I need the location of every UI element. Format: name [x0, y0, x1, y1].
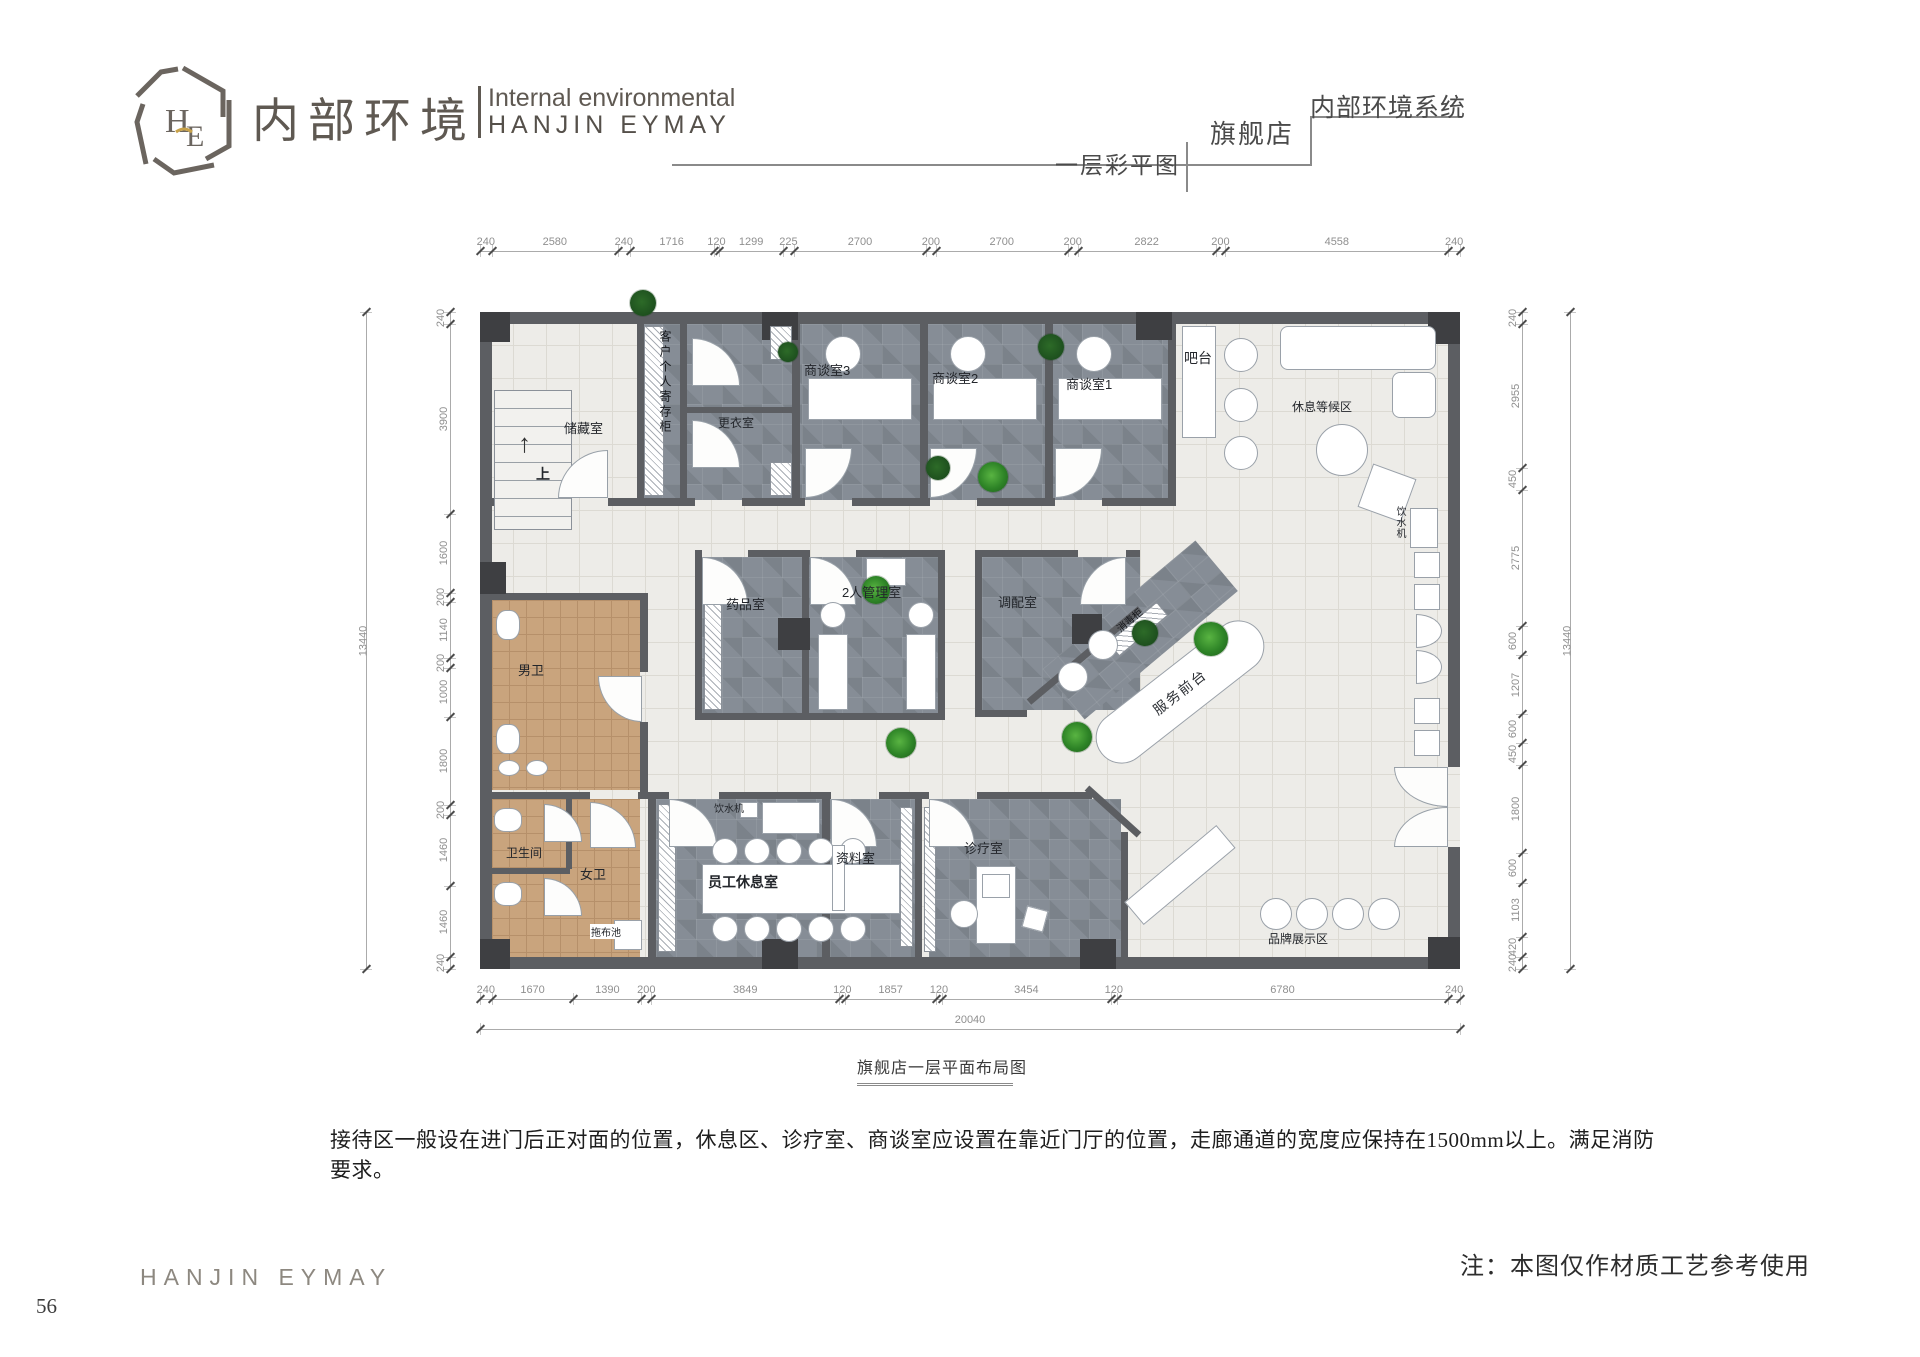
dimension-value: 200 — [435, 588, 447, 606]
pillar — [480, 312, 510, 342]
dimension-value: 240 — [435, 309, 447, 327]
wall — [638, 792, 669, 799]
wall — [915, 799, 922, 957]
dimension-total-height-left: 13440 — [344, 312, 370, 969]
dimension-value: 2580 — [543, 236, 567, 248]
display-niche — [1414, 552, 1440, 578]
dimension-value: 200 — [435, 800, 447, 818]
dimension-value: 1000 — [438, 680, 450, 704]
reference-note: 注：本图仅作材质工艺参考使用 — [1460, 1246, 1810, 1281]
dimension-value: 2822 — [1134, 236, 1158, 248]
dimension-value: 240 — [477, 984, 495, 996]
chair — [712, 916, 738, 942]
dimension-mark — [1522, 312, 1523, 969]
sofa-corner — [1392, 372, 1436, 418]
dimension-value: 2700 — [848, 236, 872, 248]
dimension-value: 1140 — [438, 618, 450, 642]
document-page: H E 内部环境 Internal environmental HANJIN E… — [0, 0, 1920, 1357]
pillar — [480, 562, 506, 594]
wall — [492, 868, 570, 874]
toilet — [494, 882, 522, 906]
brand-en-line2: HANJIN EYMAY — [488, 111, 731, 140]
dimension-value: 225 — [779, 236, 797, 248]
room-label-meeting2: 商谈室2 — [932, 368, 978, 387]
pillar — [1136, 312, 1172, 340]
room-label-meeting1: 商谈室1 — [1066, 374, 1112, 393]
dimension-value: 450 — [1507, 745, 1519, 763]
brand-en-line1: Internal environmental — [488, 84, 735, 113]
dimension-col-right: 2402955450277560012076004501800600110342… — [1500, 312, 1526, 969]
dimension-value: 200 — [922, 236, 940, 248]
chair — [808, 916, 834, 942]
dimension-value: 1800 — [438, 749, 450, 773]
brand-cn: 内部环境 — [252, 82, 476, 151]
wall — [975, 550, 1078, 557]
wall — [480, 792, 590, 799]
room-label-management: 2人管理室 — [842, 582, 901, 601]
sink — [526, 760, 548, 776]
wall — [608, 498, 695, 506]
plant-icon — [1062, 722, 1092, 752]
dimension-value: 120 — [930, 984, 948, 996]
plant-icon — [1132, 620, 1158, 646]
dimension-value: 600 — [1507, 859, 1519, 877]
dimension-value: 600 — [1507, 631, 1519, 649]
display-stool — [1296, 898, 1328, 930]
dimension-value: 450 — [1507, 470, 1519, 488]
pillar — [480, 939, 510, 969]
chair — [950, 900, 978, 928]
wall — [856, 550, 938, 557]
display-stool — [1332, 898, 1364, 930]
wall-left — [480, 312, 492, 969]
wall — [640, 600, 648, 672]
stool — [1088, 630, 1118, 660]
dimension-value: 1857 — [878, 984, 902, 996]
chair — [744, 838, 770, 864]
dimension-col-left: 2403900160020011402001000180020014601460… — [428, 312, 454, 969]
monitor — [982, 874, 1010, 898]
dimension-value: 2955 — [1510, 384, 1522, 408]
wall — [977, 498, 1055, 506]
room-label-storage: 储藏室 — [564, 418, 603, 437]
wall — [687, 407, 792, 413]
wall — [695, 713, 945, 720]
header-drawing-title: 一层彩平图 — [1044, 146, 1180, 180]
bar-stool — [1224, 388, 1258, 422]
urinal — [496, 724, 520, 754]
chair — [776, 838, 802, 864]
room-label-changing: 更衣室 — [718, 414, 754, 431]
header-system-title: 内部环境系统 — [1310, 88, 1466, 124]
wall — [1126, 550, 1140, 557]
wall — [695, 550, 702, 557]
svg-text:E: E — [186, 120, 204, 153]
header-rule-vertical — [1186, 142, 1188, 192]
room-label-mens: 男卫 — [518, 660, 544, 679]
wall — [648, 799, 656, 957]
equipment-cabinet — [770, 462, 792, 496]
wall — [492, 593, 648, 600]
room-label-meeting3: 商谈室3 — [804, 360, 850, 379]
dimension-value: 3900 — [438, 407, 450, 431]
wall — [742, 498, 805, 506]
wall — [977, 792, 1092, 799]
plant-icon — [926, 456, 950, 480]
dimension-value: 1460 — [438, 838, 450, 862]
dimension-value: 1207 — [1510, 672, 1522, 696]
display-niche — [1414, 584, 1440, 610]
wall — [748, 550, 810, 557]
dimension-value: 240 — [1507, 954, 1519, 972]
wall — [975, 710, 1027, 717]
plant-icon — [1194, 622, 1228, 656]
dimension-value: 2775 — [1510, 546, 1522, 570]
round-table — [1316, 424, 1368, 476]
dimension-value: 600 — [1507, 720, 1519, 738]
dimension-value: 3454 — [1014, 984, 1038, 996]
header-divider — [478, 86, 481, 138]
toilet — [494, 808, 522, 832]
wall-top — [480, 312, 1460, 324]
wall — [975, 550, 982, 717]
plant-icon — [1038, 334, 1064, 360]
bar-stool — [1224, 436, 1258, 470]
wall — [719, 792, 831, 799]
dimension-value: 1800 — [1510, 797, 1522, 821]
room-label-toilet: 卫生间 — [506, 844, 542, 861]
water-dispenser — [1410, 508, 1438, 548]
wall — [1102, 498, 1176, 506]
dimension-value: 4558 — [1325, 236, 1349, 248]
pillar — [762, 939, 798, 969]
dimension-value: 1670 — [520, 984, 544, 996]
dimension-value: 200 — [1211, 236, 1229, 248]
wall-right-upper — [1448, 312, 1460, 767]
room-label-staff: 员工休息室 — [708, 872, 778, 892]
stool — [908, 602, 934, 628]
wall-bottom — [480, 957, 1460, 969]
footer-brand: HANJIN EYMAY — [140, 1264, 392, 1291]
display-niche — [1414, 698, 1440, 724]
wall — [879, 792, 929, 799]
chair — [776, 916, 802, 942]
archive-shelf — [900, 807, 913, 947]
desk — [808, 378, 912, 420]
dimension-value: 240 — [1445, 984, 1463, 996]
sofa — [1280, 326, 1436, 370]
plant-icon — [778, 342, 798, 362]
sink — [498, 760, 520, 776]
wall — [637, 324, 644, 498]
room-label-archive: 资料室 — [836, 848, 875, 867]
header-step-low — [1186, 164, 1312, 166]
room-label-locker: 客户个人寄存柜 — [657, 330, 674, 490]
stool — [1058, 662, 1088, 692]
wall — [852, 498, 930, 506]
dimension-total-width: 20040 — [480, 1006, 1460, 1032]
body-paragraph: 接待区一般设在进门后正对面的位置，休息区、诊疗室、商谈室应设置在靠近门厅的位置，… — [330, 1124, 1660, 1184]
header-store-title: 旗舰店 — [1210, 114, 1294, 151]
room-label-staff-water: 饮水机 — [714, 800, 744, 815]
plant-icon — [630, 290, 656, 316]
pillar — [778, 618, 810, 650]
dimension-value: 20040 — [955, 1014, 986, 1026]
dimension-value: 120 — [833, 984, 851, 996]
dimension-value: 120 — [707, 236, 725, 248]
desk — [906, 634, 936, 710]
room-label-dispensing: 调配室 — [998, 592, 1037, 611]
dimension-row-top: 2402580240171612012992252700200270020028… — [480, 228, 1460, 254]
dimension-value: 1103 — [1510, 898, 1522, 922]
dimension-value: 200 — [1064, 236, 1082, 248]
dimension-value: 240 — [615, 236, 633, 248]
room-label-mop: 拖布池 — [590, 924, 622, 939]
dimension-total-height-right: 13440 — [1548, 312, 1574, 969]
stairs-up-arrow-icon: ↑ — [518, 428, 531, 459]
pillar — [1428, 937, 1460, 969]
room-label-display: 品牌展示区 — [1268, 930, 1328, 947]
dimension-value: 2700 — [990, 236, 1014, 248]
dimension-row-bottom: 2401670139020038491201857120345412067802… — [480, 976, 1460, 1002]
chair — [808, 838, 834, 864]
chair — [744, 916, 770, 942]
room-label-water-right: 饮水机 — [1392, 506, 1407, 539]
wall — [1121, 832, 1128, 957]
room-label-treatment: 诊疗室 — [964, 838, 1003, 857]
desk — [818, 634, 848, 710]
chair — [950, 336, 986, 372]
floor-plan: ↑ 上 — [480, 312, 1460, 969]
wall — [680, 324, 687, 498]
dimension-value: 1716 — [659, 236, 683, 248]
bar-counter — [1182, 326, 1216, 438]
dimension-value: 240 — [477, 236, 495, 248]
dimension-value: 120 — [1105, 984, 1123, 996]
plant-icon — [978, 462, 1008, 492]
chair — [840, 916, 866, 942]
dimension-value: 240 — [435, 954, 447, 972]
bar-stool — [1224, 338, 1258, 372]
display-niche — [1414, 730, 1440, 756]
dimension-value: 240 — [1507, 309, 1519, 327]
room-label-medicine: 药品室 — [726, 594, 765, 613]
room-label-waiting: 休息等候区 — [1292, 398, 1352, 415]
wall — [938, 550, 945, 720]
wall — [1168, 324, 1176, 498]
pillar — [1080, 939, 1116, 969]
wall — [640, 722, 648, 792]
dimension-value: 1299 — [739, 236, 763, 248]
urinal — [496, 610, 520, 640]
stool — [820, 602, 846, 628]
dimension-value: 1390 — [595, 984, 619, 996]
display-stool — [1368, 898, 1400, 930]
cabinet — [762, 802, 820, 834]
staircase — [494, 390, 572, 530]
chair — [712, 838, 738, 864]
room-label-up: 上 — [536, 464, 550, 484]
page-number: 56 — [36, 1294, 57, 1319]
room-label-bar: 吧台 — [1184, 348, 1212, 368]
display-stool — [1260, 898, 1292, 930]
dimension-value: 1460 — [438, 909, 450, 933]
dimension-value: 13440 — [1561, 625, 1573, 656]
dimension-mark — [480, 999, 1460, 1000]
dimension-value: 200 — [435, 654, 447, 672]
dimension-value: 6780 — [1270, 984, 1294, 996]
dimension-mark — [480, 1029, 1460, 1030]
dimension-value: 200 — [637, 984, 655, 996]
brand-logo-icon: H E — [126, 60, 240, 178]
room-label-womens: 女卫 — [580, 864, 606, 883]
dimension-value: 1600 — [438, 541, 450, 565]
dimension-value: 240 — [1445, 236, 1463, 248]
dimension-value: 3849 — [733, 984, 757, 996]
plant-icon — [886, 728, 916, 758]
wall — [695, 550, 702, 720]
dimension-value: 13440 — [357, 625, 369, 656]
plan-caption: 旗舰店一层平面布局图 — [857, 1054, 1013, 1086]
chair — [1076, 336, 1112, 372]
